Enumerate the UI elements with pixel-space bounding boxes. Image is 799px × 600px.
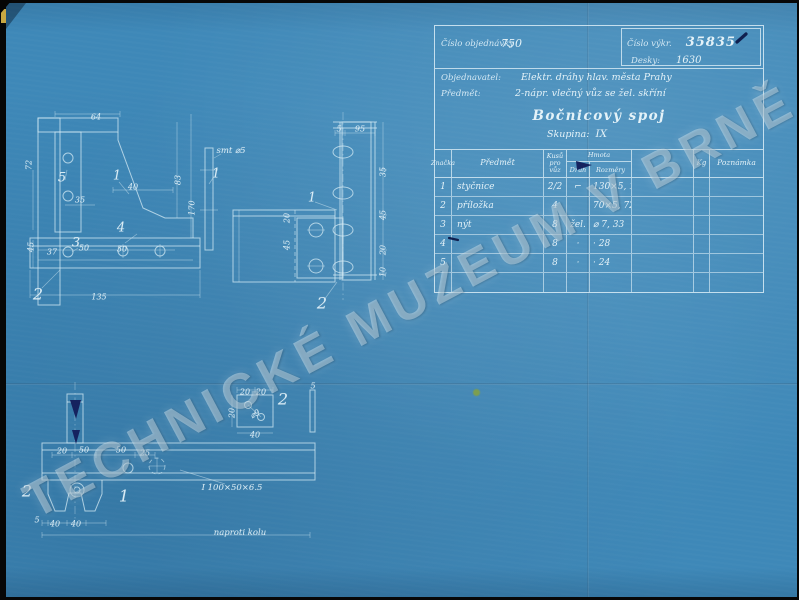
ink-marks [0,0,799,600]
ink-table-arrow [576,161,592,170]
ink-arrow [70,400,81,419]
scan-corner [0,0,12,14]
ink-stroke-drawing-number [737,34,746,42]
scan-background: Číslo objednávky 750 Číslo výkr.35835 De… [0,0,799,600]
ink-dash [449,238,458,240]
ink-arrow-small [72,430,80,444]
